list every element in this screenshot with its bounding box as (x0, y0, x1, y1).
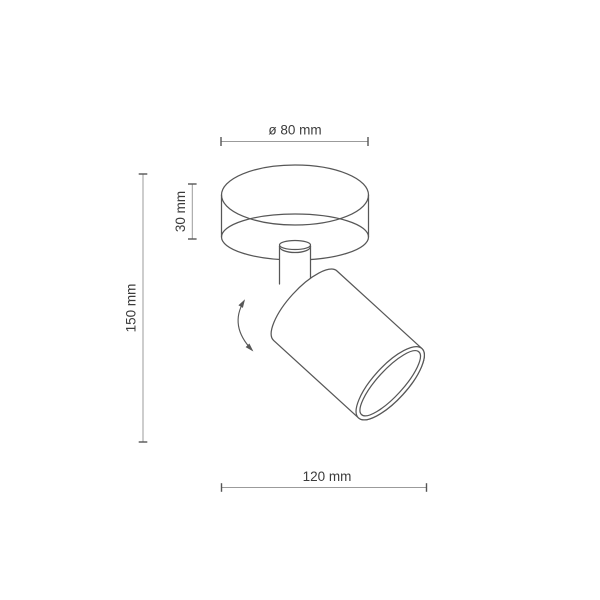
diameter-label: ø 80 mm (268, 123, 321, 138)
swivel-stem (280, 241, 311, 285)
dimension-drawing-canvas: ø 80 mm 30 mm 150 mm 120 mm (0, 0, 600, 600)
width-dimension: 120 mm (222, 469, 427, 492)
diameter-dimension: ø 80 mm (221, 123, 368, 147)
canopy-top-ellipse (222, 165, 369, 225)
dimension-drawing: ø 80 mm 30 mm 150 mm 120 mm (0, 0, 600, 600)
canopy-height-label: 30 mm (173, 191, 188, 232)
rotation-arrow-icon (238, 298, 255, 353)
spot-head (261, 260, 434, 430)
stem-top-ellipse (280, 241, 311, 250)
total-height-label: 150 mm (124, 284, 139, 333)
rotation-arrow-arc (238, 301, 252, 350)
rotation-arrow-top-head (238, 298, 247, 308)
canopy-height-dimension: 30 mm (173, 184, 197, 239)
total-height-dimension: 150 mm (124, 174, 148, 442)
width-label: 120 mm (303, 469, 352, 484)
spot-head-body (261, 260, 434, 430)
